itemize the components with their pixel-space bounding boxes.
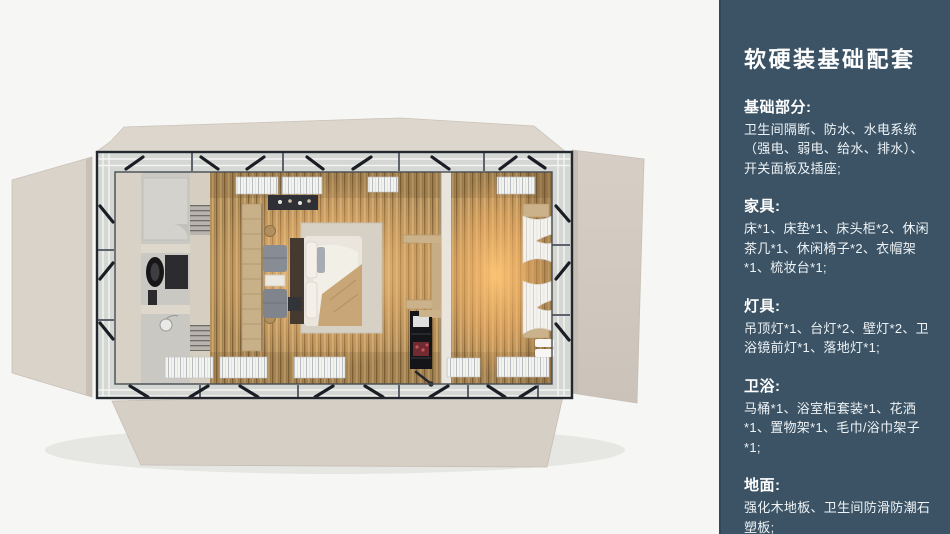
accent-pillow xyxy=(317,247,325,273)
side-stool xyxy=(288,297,302,311)
section-heading: 家具: xyxy=(744,195,934,216)
outer-flap-left xyxy=(12,157,92,397)
partition-shelf-post xyxy=(432,236,441,318)
section-basics: 基础部分: 卫生间隔断、防水、水电系统（强电、弱电、给水、排水）、开关面板及插座… xyxy=(744,96,934,179)
partition-shelf-2 xyxy=(419,310,441,317)
partition-shelf-1 xyxy=(419,236,441,243)
outer-flap-bottom xyxy=(112,392,564,467)
towel-2 xyxy=(535,349,554,357)
section-heading: 灯具: xyxy=(744,295,934,316)
pillow-1 xyxy=(306,242,317,278)
tea-table xyxy=(265,275,285,286)
section-body: 床*1、床垫*1、床头柜*2、休闲茶几*1、休闲椅子*2、衣帽架*1、梳妆台*1… xyxy=(744,219,934,278)
toilet-bowl xyxy=(151,263,160,281)
outer-flap-left-edge xyxy=(86,157,92,397)
floor-plan-render xyxy=(0,0,719,534)
bathroom-wall xyxy=(115,172,141,384)
section-bathroom: 卫浴: 马桶*1、浴室柜套装*1、花洒*1、置物架*1、毛巾/浴巾架子*1; xyxy=(744,375,934,458)
section-body: 吊顶灯*1、台灯*2、壁灯*2、卫浴镜前灯*1、落地灯*1; xyxy=(744,319,934,358)
outer-flap-right xyxy=(572,150,644,403)
outer-flap-top xyxy=(96,118,566,152)
towel-rack-2 xyxy=(190,325,210,351)
section-heading: 卫浴: xyxy=(744,375,934,396)
section-heading: 基础部分: xyxy=(744,96,934,117)
vanity-cabinet xyxy=(165,255,188,289)
section-lighting: 灯具: 吊顶灯*1、台灯*2、壁灯*2、卫浴镜前灯*1、落地灯*1; xyxy=(744,295,934,358)
section-heading: 地面: xyxy=(744,474,934,495)
bathroom-area xyxy=(115,172,210,384)
bathroom-partition xyxy=(190,172,210,384)
minibar-shelf xyxy=(410,311,432,369)
towel-1 xyxy=(535,339,554,347)
section-furniture: 家具: 床*1、床垫*1、床头柜*2、休闲茶几*1、休闲椅子*2、衣帽架*1、梳… xyxy=(744,195,934,278)
bathroom-shelf-1 xyxy=(141,244,190,253)
section-flooring: 地面: 强化木地板、卫生间防滑防潮石塑板; xyxy=(744,474,934,534)
info-panel: 软硬装基础配套 基础部分: 卫生间隔断、防水、水电系统（强电、弱电、给水、排水）… xyxy=(719,0,950,534)
section-body: 卫生间隔断、防水、水电系统（强电、弱电、给水、排水）、开关面板及插座; xyxy=(744,120,934,179)
bathroom-mat xyxy=(148,290,157,305)
pillow-2 xyxy=(306,282,317,318)
shower-enclosure xyxy=(143,178,188,240)
hanging-rack xyxy=(268,195,318,210)
bed xyxy=(290,236,362,326)
towel-rack-1 xyxy=(190,205,210,235)
headboard xyxy=(290,238,304,324)
section-body: 强化木地板、卫生间防滑防潮石塑板; xyxy=(744,498,934,534)
section-body: 马桶*1、浴室柜套装*1、花洒*1、置物架*1、毛巾/浴巾架子*1; xyxy=(744,399,934,458)
bathroom-shelf-2 xyxy=(141,305,190,314)
curtain-pelmet-1 xyxy=(523,204,549,217)
panel-title: 软硬装基础配套 xyxy=(744,46,934,74)
shower-head-icon xyxy=(160,319,172,331)
slide: 软硬装基础配套 基础部分: 卫生间隔断、防水、水电系统（强电、弱电、给水、排水）… xyxy=(0,0,950,534)
basket-1 xyxy=(265,226,276,237)
